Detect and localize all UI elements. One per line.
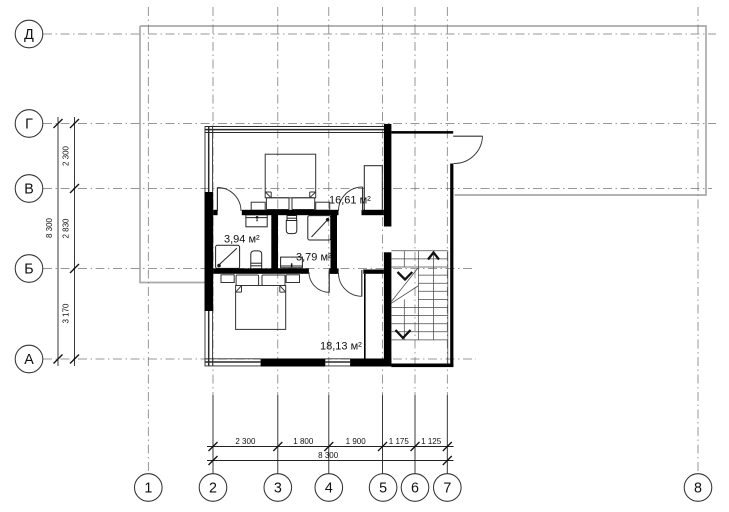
svg-text:5: 5: [379, 481, 387, 497]
svg-text:А: А: [24, 352, 34, 368]
svg-text:1: 1: [144, 481, 152, 497]
svg-text:1 175: 1 175: [389, 437, 410, 446]
svg-text:2: 2: [209, 481, 217, 497]
svg-text:8 300: 8 300: [45, 217, 54, 238]
svg-text:18,13 м²: 18,13 м²: [320, 341, 362, 353]
svg-text:6: 6: [411, 481, 419, 497]
svg-text:2 300: 2 300: [235, 437, 256, 446]
svg-text:Б: Б: [24, 262, 33, 278]
svg-text:1 125: 1 125: [421, 437, 442, 446]
svg-text:3,94 м²: 3,94 м²: [224, 234, 260, 246]
svg-text:4: 4: [325, 481, 333, 497]
svg-text:В: В: [24, 182, 34, 198]
svg-text:1 900: 1 900: [346, 437, 367, 446]
svg-text:Д: Д: [24, 27, 34, 43]
svg-text:1 800: 1 800: [293, 437, 314, 446]
svg-text:8 300: 8 300: [318, 451, 339, 460]
svg-text:3 170: 3 170: [62, 303, 71, 324]
svg-text:8: 8: [694, 481, 702, 497]
svg-text:2 830: 2 830: [62, 218, 71, 239]
svg-text:Г: Г: [25, 117, 33, 133]
svg-text:3: 3: [274, 481, 282, 497]
svg-text:16,61 м²: 16,61 м²: [329, 195, 371, 207]
svg-text:7: 7: [443, 481, 451, 497]
svg-text:2 300: 2 300: [62, 145, 71, 166]
svg-text:3,79 м²: 3,79 м²: [296, 252, 332, 264]
